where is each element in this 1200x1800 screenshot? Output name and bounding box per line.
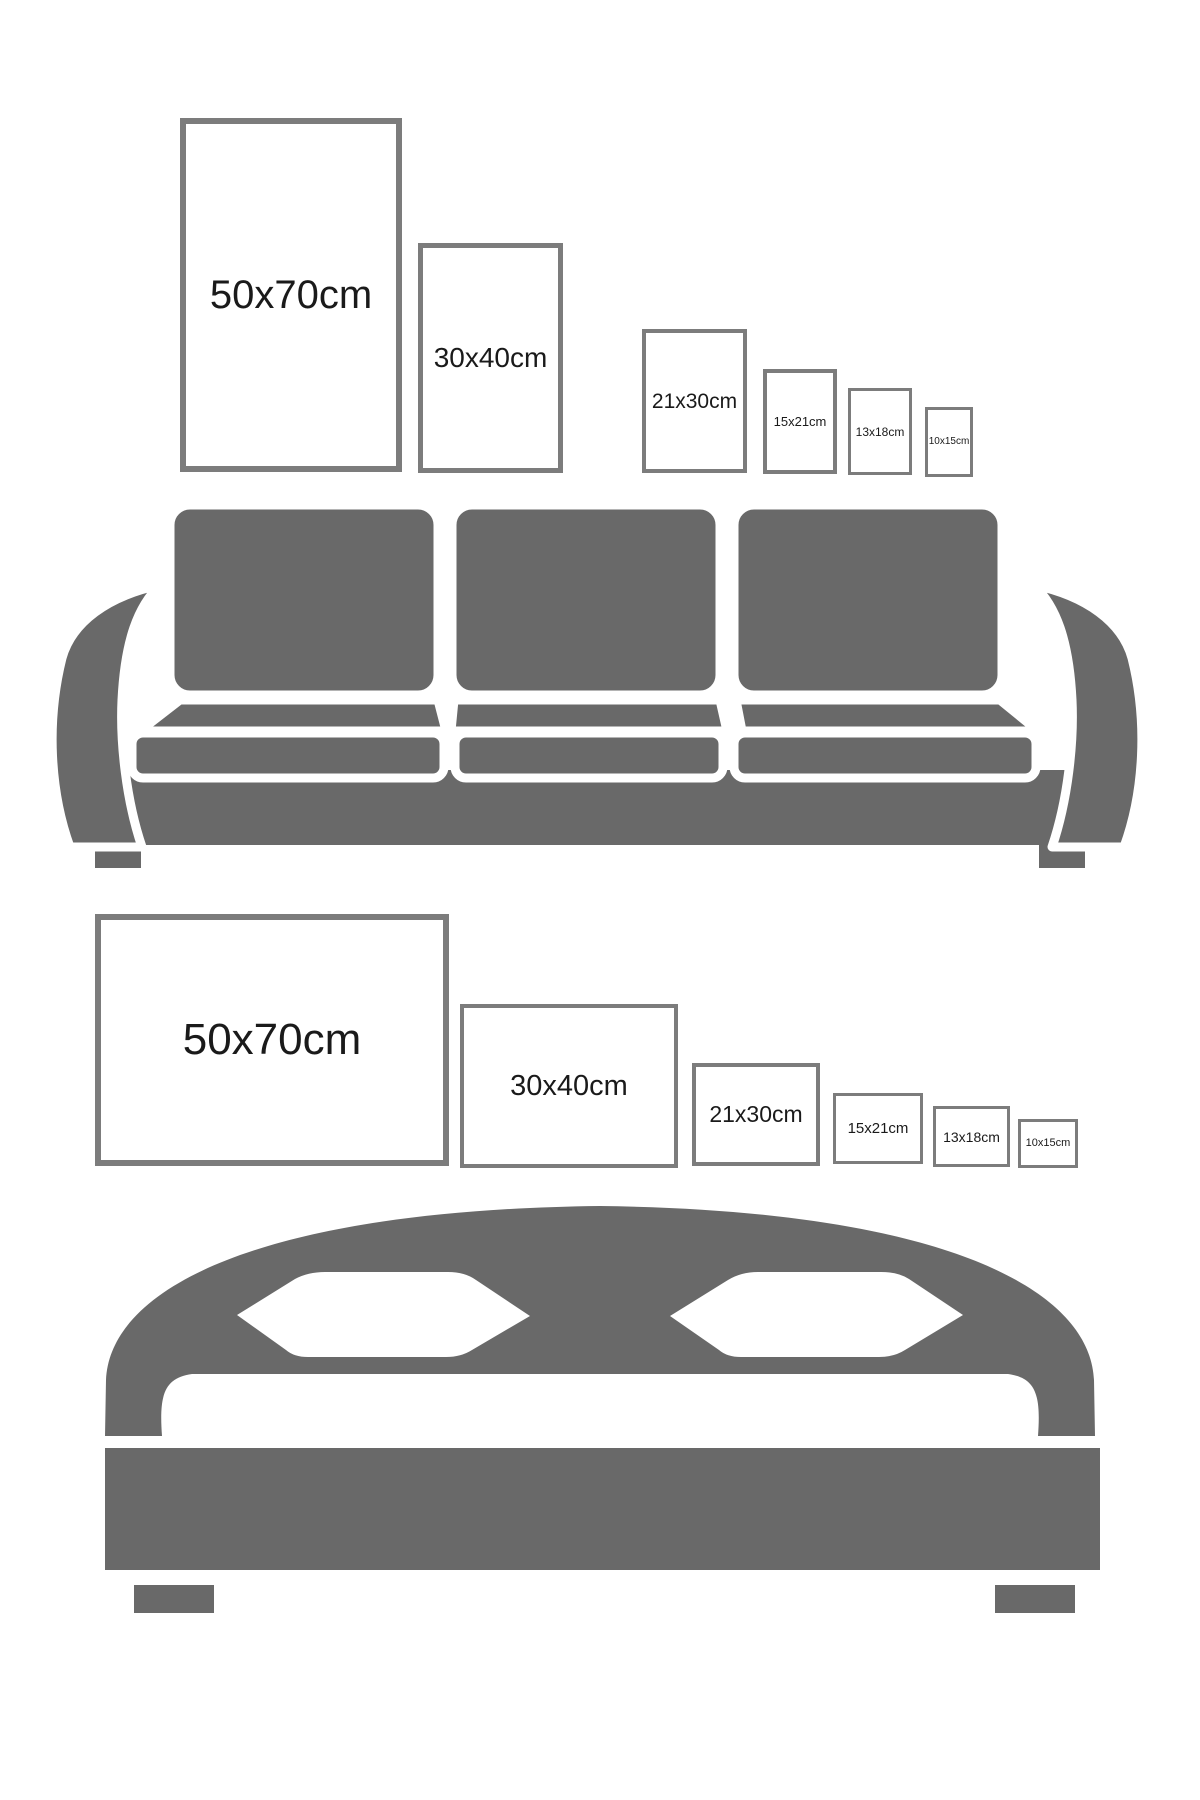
frame-size-label: 13x18cm bbox=[943, 1130, 1000, 1144]
frame-30x40-portrait: 30x40cm bbox=[418, 243, 563, 473]
frame-size-label: 30x40cm bbox=[434, 344, 548, 372]
frame-13x18-landscape: 13x18cm bbox=[933, 1106, 1010, 1167]
frame-21x30-landscape: 21x30cm bbox=[692, 1063, 820, 1166]
frame-size-label: 50x70cm bbox=[210, 275, 372, 315]
frame-size-label: 15x21cm bbox=[774, 415, 827, 428]
frame-15x21-landscape: 15x21cm bbox=[833, 1093, 923, 1164]
frame-size-label: 21x30cm bbox=[652, 391, 737, 412]
frame-50x70-portrait: 50x70cm bbox=[180, 118, 402, 472]
bed-foot-right bbox=[995, 1585, 1075, 1613]
sofa-deck-panel bbox=[140, 700, 446, 731]
frame-10x15-landscape: 10x15cm bbox=[1018, 1119, 1078, 1168]
sofa-seat-cushion bbox=[132, 733, 444, 778]
sofa-deck-panel bbox=[736, 700, 1038, 731]
sofa-back-cushion bbox=[734, 505, 1002, 695]
frame-size-label: 13x18cm bbox=[856, 426, 905, 438]
frame-size-label: 10x15cm bbox=[1026, 1138, 1071, 1149]
bed-foot-left bbox=[134, 1585, 214, 1613]
bed-illustration bbox=[0, 1180, 1200, 1640]
frame-30x40-landscape: 30x40cm bbox=[460, 1004, 678, 1168]
sofa-back-cushion bbox=[170, 505, 438, 695]
sofa-seat-cushion bbox=[455, 733, 723, 778]
frame-size-label: 50x70cm bbox=[183, 1018, 362, 1062]
bed-base bbox=[105, 1448, 1100, 1570]
size-guide-infographic: 50x70cm 30x40cm 21x30cm 15x21cm 13x18cm … bbox=[0, 0, 1200, 1800]
sofa-seat-cushion bbox=[734, 733, 1036, 778]
frame-50x70-landscape: 50x70cm bbox=[95, 914, 449, 1166]
frame-size-label: 15x21cm bbox=[848, 1121, 909, 1136]
frame-size-label: 30x40cm bbox=[510, 1072, 628, 1101]
sofa-deck-panel bbox=[451, 700, 727, 731]
sofa-back-cushion bbox=[452, 505, 720, 695]
sofa-illustration bbox=[0, 440, 1200, 880]
frame-size-label: 21x30cm bbox=[709, 1103, 802, 1126]
